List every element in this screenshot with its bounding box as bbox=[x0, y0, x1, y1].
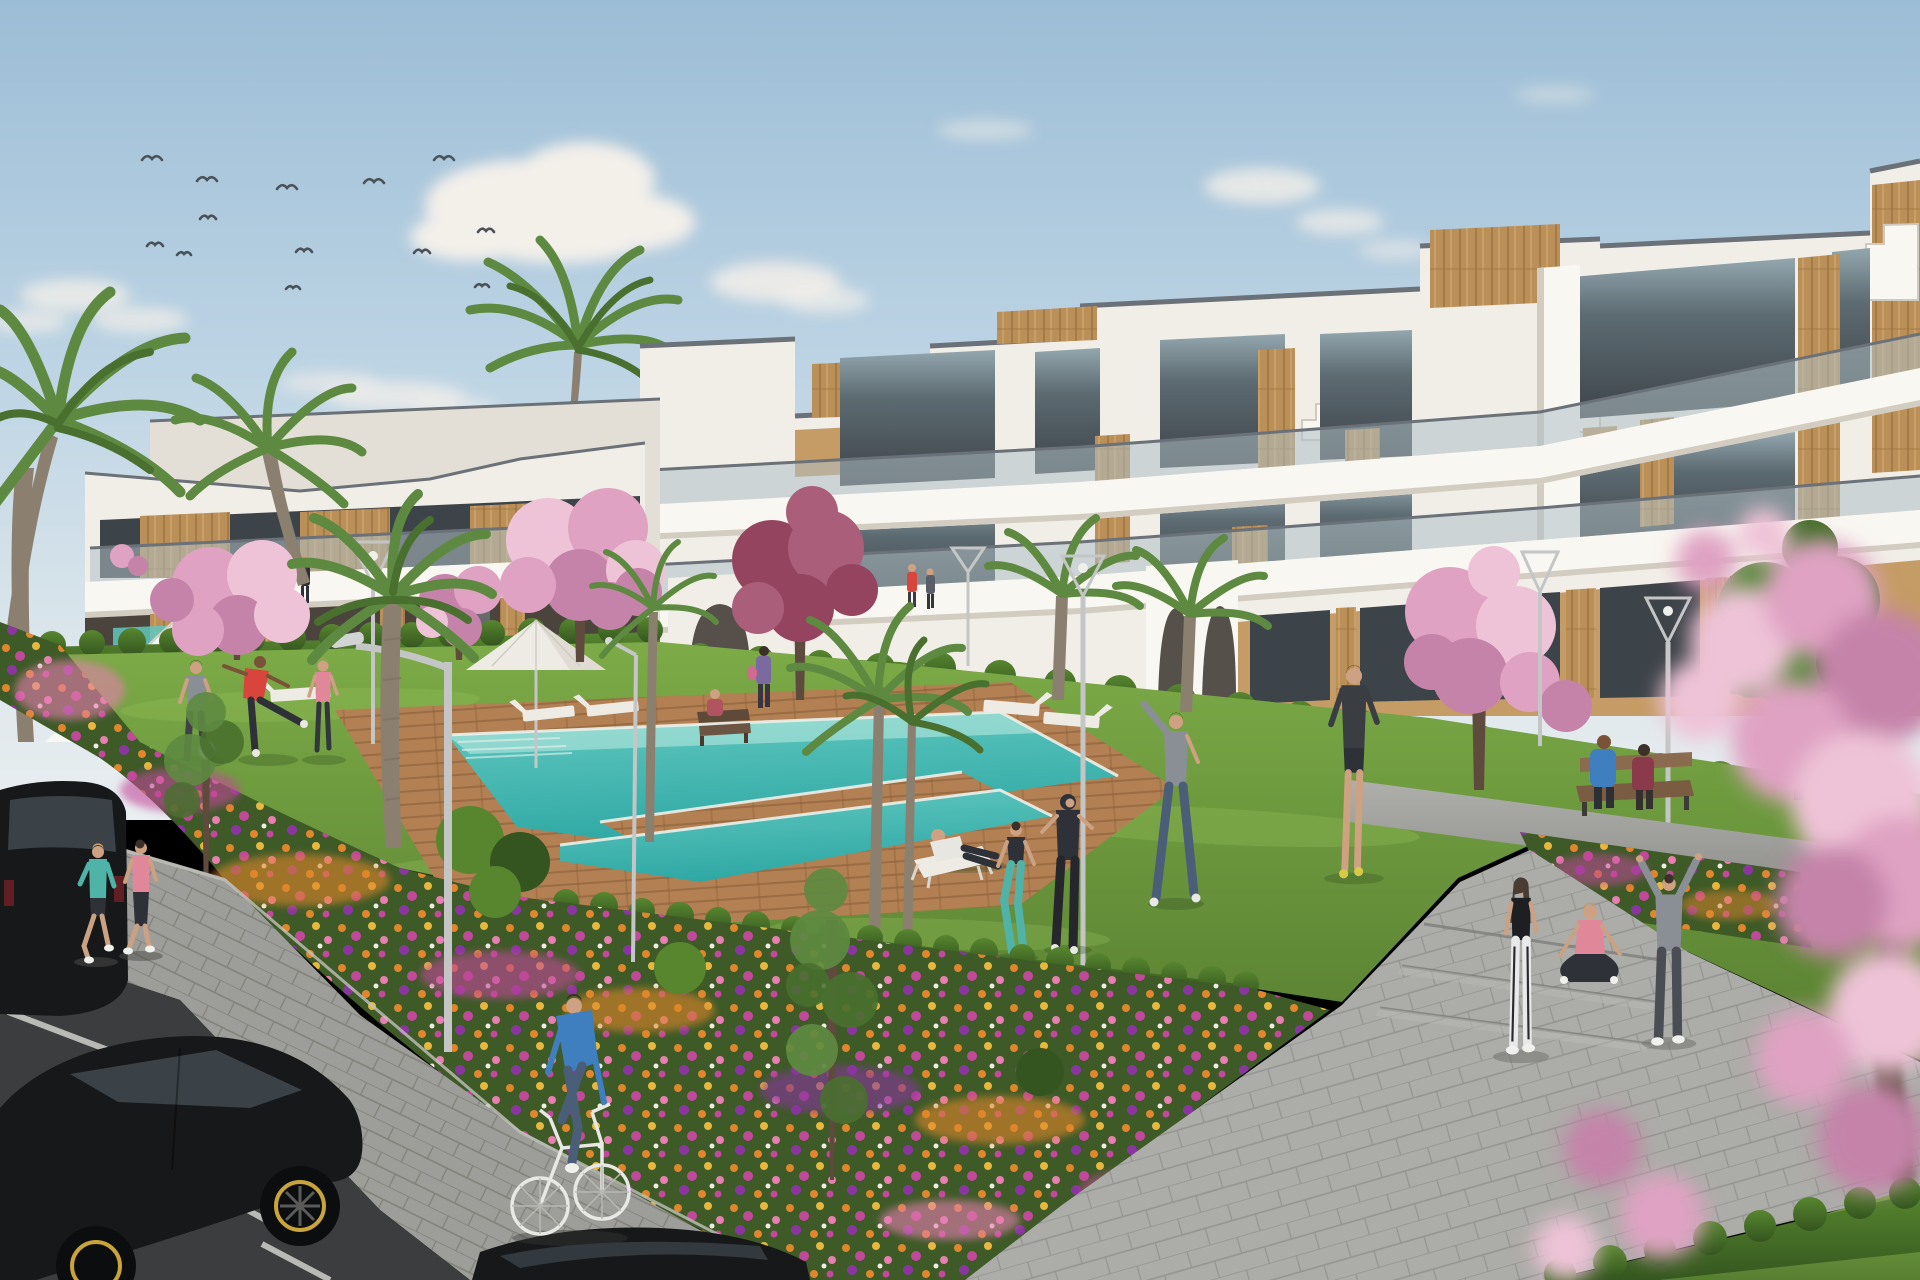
cherry-small-right bbox=[1540, 680, 1592, 732]
render-image: Sunny 3D architectural render: white res… bbox=[0, 0, 1920, 1280]
car-suv-rear bbox=[0, 781, 128, 1016]
